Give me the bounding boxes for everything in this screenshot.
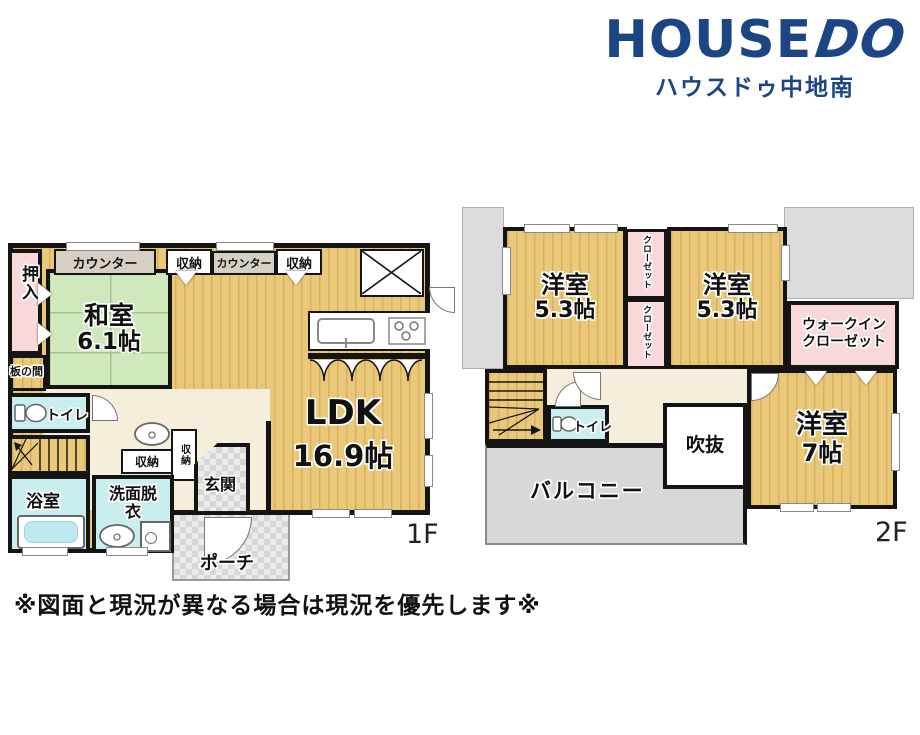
washbasin-icon	[98, 523, 136, 549]
yoshitsu1-size: 5.3帖	[535, 299, 596, 324]
toilet-icon	[14, 401, 48, 425]
bath-label: 浴室	[26, 487, 60, 512]
window	[574, 224, 618, 233]
toilet-room-2f: トイレ	[547, 405, 609, 443]
sink-icon	[317, 318, 375, 344]
toilet-room-1f: トイレ	[8, 393, 90, 433]
window	[728, 224, 778, 233]
window	[312, 509, 350, 518]
shuno-vertical-label: 収納	[177, 444, 192, 466]
closet2-label: クローゼット	[640, 305, 653, 359]
floor-label-1f: 1F	[406, 519, 439, 550]
brand-subtitle: ハウスドゥ中地南	[600, 68, 910, 102]
fukinuke-label: 吹抜	[686, 435, 724, 456]
fukinuke-void: 吹抜	[663, 403, 747, 489]
washitsu-label: 和室	[84, 302, 134, 330]
kitchen-xbox	[360, 249, 424, 297]
itanoma-label: 板の間	[10, 363, 43, 379]
wic-label: ウォークインクローゼット	[798, 317, 890, 351]
counter-tag-1: カウンター	[54, 249, 156, 275]
brand-head: HOUSE	[604, 10, 812, 70]
floor-label-2f: 2F	[875, 517, 908, 548]
cabinet-arcs	[308, 353, 426, 383]
faucet-icon	[345, 338, 347, 348]
floor-plan-2f: 洋室 5.3帖 クローゼット クローゼット 洋室 5.3帖 ウォークインクローゼ…	[460, 185, 918, 553]
window	[502, 247, 511, 295]
yoshitsu7-label: 洋室	[796, 411, 848, 440]
ldk-label: LDK	[263, 393, 423, 433]
senmen-label: 洗面脱衣	[104, 485, 162, 522]
closet1-label: クローゼット	[640, 235, 653, 289]
walkin-closet: ウォークインクローゼット	[787, 301, 899, 369]
genkan-label: 玄関	[204, 471, 236, 495]
sliding-door-marker	[38, 323, 52, 345]
oshiire-closet: 押入	[8, 249, 42, 355]
window	[354, 509, 392, 518]
door-arc	[429, 287, 455, 313]
floor-plan-1f: 押入 和室 6.1帖 板の間 カウンター 収納 カウンター 収納	[8, 243, 456, 585]
senmen-room: 洗面脱衣	[92, 475, 174, 553]
stairs-treads	[489, 373, 543, 439]
washitsu-size-label: 6.1帖	[77, 330, 141, 356]
sliding-door-marker	[38, 283, 52, 305]
yoshitsu-room-1: 洋室 5.3帖	[503, 227, 627, 369]
stove-icon	[388, 317, 426, 345]
disclaimer-text: ※図面と現況が異なる場合は現況を優先します※	[14, 586, 541, 620]
brand-logo: HOUSEDO ハウスドゥ中地南	[600, 14, 910, 102]
toilet-label: トイレ	[46, 405, 88, 425]
yoshitsu-room-2: 洋室 5.3帖	[667, 227, 787, 369]
brand-tail: DO	[813, 14, 910, 66]
brand-wordmark: HOUSEDO	[600, 14, 910, 66]
window	[780, 503, 814, 512]
stairs-1f	[8, 435, 90, 475]
window	[22, 547, 68, 556]
yoshitsu2-size: 5.3帖	[697, 299, 758, 324]
kitchen-counter	[308, 311, 430, 351]
stairs-2f	[485, 369, 547, 443]
washitsu-room: 和室 6.1帖	[46, 269, 172, 389]
toilet-label: トイレ	[573, 416, 612, 435]
window	[106, 547, 148, 556]
yoshitsu1-label: 洋室	[541, 272, 589, 299]
yoshitsu7-size: 7帖	[802, 440, 843, 467]
shuno-tag-3: 収納	[121, 449, 173, 474]
x-mark-icon	[362, 251, 421, 294]
window	[424, 393, 433, 439]
shuno-tag-4: 収納	[171, 429, 197, 481]
washbasin-icon	[133, 421, 171, 447]
ldk-size-label: 16.9帖	[263, 433, 423, 475]
folding-door-marker	[805, 371, 827, 385]
counter-tag-2: カウンター	[212, 251, 276, 275]
yoshitsu2-label: 洋室	[703, 272, 751, 299]
folding-door-marker	[175, 271, 197, 285]
window	[524, 224, 570, 233]
bath-room: 浴室	[8, 475, 90, 553]
stairs-treads	[12, 439, 86, 471]
floorplan-page: HOUSEDO ハウスドゥ中地南 押入 和室 6.1帖 板の間 カ	[0, 0, 920, 735]
window	[66, 242, 140, 251]
window	[891, 413, 900, 471]
window	[817, 503, 851, 512]
balcony-label: バルコニー	[530, 475, 645, 505]
roof-area	[784, 207, 914, 299]
closet-2: クローゼット	[625, 299, 667, 369]
roof-area	[462, 207, 504, 369]
window	[781, 245, 790, 281]
closet-1: クローゼット	[625, 229, 667, 299]
window	[216, 242, 274, 251]
folding-door-marker	[855, 371, 877, 385]
window	[424, 455, 433, 487]
porch-label: ポーチ	[200, 549, 254, 575]
bathtub-icon	[17, 515, 85, 549]
folding-door-marker	[285, 271, 307, 285]
